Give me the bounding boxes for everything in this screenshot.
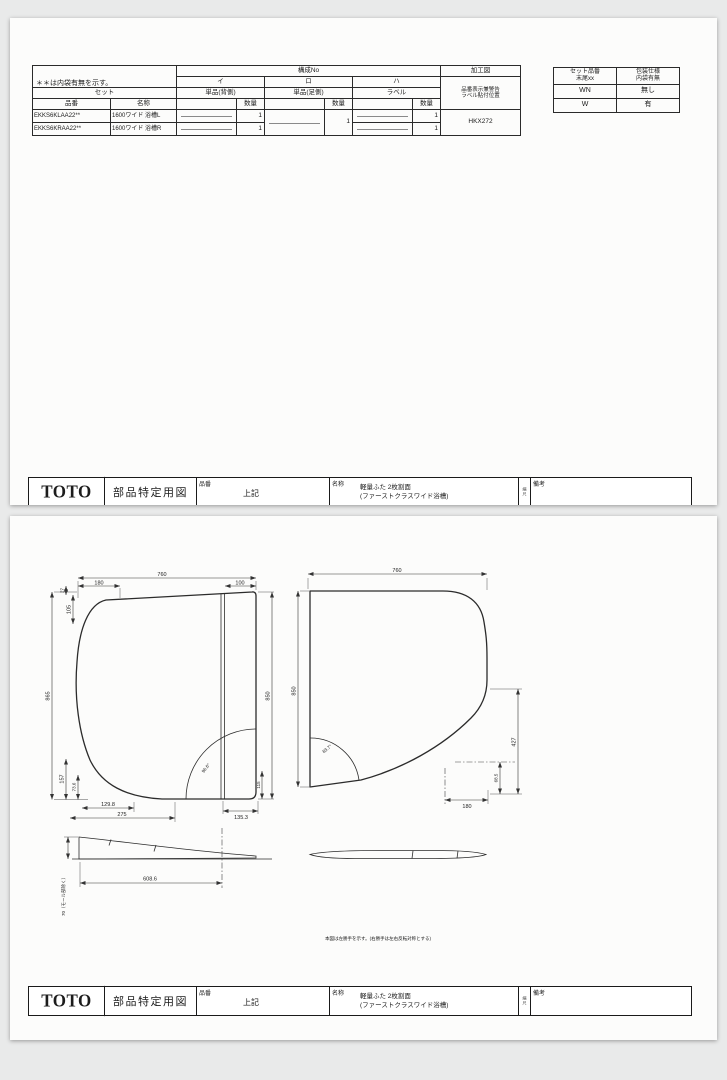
dim-850-left: 850 <box>266 691 272 700</box>
lid-left-profile: 608.6 70（モール部除く） <box>60 828 272 916</box>
dim-608-6: 608.6 <box>143 877 157 883</box>
processing-drawing-no: HKX272 <box>441 110 521 136</box>
blank-header <box>353 99 413 110</box>
dim-70-mold: 70（モール部除く） <box>60 875 67 916</box>
part-no-value: 上記 <box>243 488 259 499</box>
bag-code-cell: W <box>554 98 617 112</box>
component-blank-cell <box>353 110 413 123</box>
qty-cell: 1 <box>237 123 265 136</box>
qty-cell: 1 <box>413 123 441 136</box>
dim-180-right: 180 <box>462 804 471 810</box>
name-value: 軽量ふた 2枚割面 (ファーストクラスワイド浴槽) <box>360 484 448 502</box>
part-no-value: 上記 <box>243 997 259 1008</box>
name-value-line1: 軽量ふた 2枚割面 <box>360 484 448 493</box>
bag-col1-line1: セット品番 <box>554 69 616 76</box>
sheet-2: 96.6° 760 180 100 27 105 865 157 73.6 <box>10 516 717 1040</box>
lid-right-outline <box>310 591 487 787</box>
dim-100-left: 100 <box>235 581 244 587</box>
group-i-header: イ <box>177 77 265 88</box>
group-ha-header: ハ <box>353 77 441 88</box>
label-position-note: 品番表示兼警告 ラベル貼付位置 <box>441 77 521 110</box>
title-block: TOTO 部品特定用図 品番 上記 名称 軽量ふた 2枚割面 (ファーストクラス… <box>28 477 692 505</box>
part-no-label: 品番 <box>199 988 211 997</box>
dim-73-6-left: 73.6 <box>72 782 77 791</box>
qty-header-ha: 数量 <box>413 99 441 110</box>
dim-width-left: 760 <box>157 572 166 578</box>
scale-field: 縮尺 <box>519 478 531 505</box>
part-no-header: 品番 <box>33 99 111 110</box>
packaging-spec-table: セット品番 末尾xx 包装仕様 内袋有無 WN 無し W 有 <box>553 67 680 113</box>
scale-text: 縮尺 <box>522 996 528 1006</box>
lid-right-profile <box>310 851 486 859</box>
lid-left-view: 96.6° 760 180 100 27 105 865 157 73.6 <box>46 572 275 822</box>
blank-header <box>265 99 325 110</box>
toto-logo: TOTO <box>29 477 105 505</box>
part-no-field: 品番 上記 <box>197 478 330 505</box>
document-type: 部品特定用図 <box>105 987 197 1015</box>
remarks-label: 備考 <box>533 479 545 488</box>
composition-table: ＊＊は内袋有無を示す。 構成No 加工図 イ ロ ハ 品番表示兼警告 ラベル貼付… <box>32 65 521 136</box>
blank-header <box>177 99 237 110</box>
dim-height-left: 865 <box>46 691 52 700</box>
lid-left-outline <box>76 592 256 799</box>
lid-right-view: 83.7° 760 850 427 68.5 180 <box>292 568 523 810</box>
composition-no-header: 構成No <box>177 66 441 77</box>
table-row: WN 無し <box>554 84 680 98</box>
title-block: TOTO 部品特定用図 品番 上記 名称 軽量ふた 2枚割面 (ファーストクラス… <box>28 986 692 1016</box>
handedness-note: 本図は左勝手を示す。(右勝手は左右反転対称とする) <box>325 935 431 942</box>
label-position-line2: ラベル貼付位置 <box>442 93 519 99</box>
name-label: 名称 <box>332 988 344 997</box>
table-row: W 有 <box>554 98 680 112</box>
remarks-field: 備考 <box>531 987 691 1015</box>
set-header: セット <box>33 88 177 99</box>
component-blank-cell <box>353 123 413 136</box>
table-row: EKKS6KLAA22** 1600ワイド 浴槽L 1 1 1 HKX272 <box>33 110 521 123</box>
dim-width-right: 760 <box>392 568 401 574</box>
bag-col2-header: 包装仕様 内袋有無 <box>617 68 680 85</box>
dim-angle-left: 96.6° <box>201 762 212 774</box>
scale-text: 縮尺 <box>522 487 528 497</box>
bag-col1-header: セット品番 末尾xx <box>554 68 617 85</box>
part-no-label: 品番 <box>199 479 211 488</box>
dim-129-8-left: 129.8 <box>101 802 115 808</box>
dim-157-left: 157 <box>60 774 66 783</box>
part-no-field: 品番 上記 <box>197 987 330 1015</box>
group-ro-header: ロ <box>265 77 353 88</box>
group-ro-sub: 単品(足側) <box>265 88 353 99</box>
bag-code-cell: WN <box>554 84 617 98</box>
qty-header-i: 数量 <box>237 99 265 110</box>
toto-logo: TOTO <box>29 986 105 1016</box>
name-value: 軽量ふた 2枚割面 (ファーストクラスワイド浴槽) <box>360 993 448 1011</box>
dim-180-left: 180 <box>94 581 103 587</box>
sheet-1: ＊＊は内袋有無を示す。 構成No 加工図 イ ロ ハ 品番表示兼警告 ラベル貼付… <box>10 18 717 505</box>
dim-68-5-right: 68.5 <box>494 773 499 782</box>
component-blank-cell <box>177 110 237 123</box>
group-ha-sub: ラベル <box>353 88 441 99</box>
name-label: 名称 <box>332 479 344 488</box>
group-i-sub: 単品(背側) <box>177 88 265 99</box>
remarks-label: 備考 <box>533 988 545 997</box>
remarks-field: 備考 <box>531 478 691 505</box>
angle-arc <box>310 738 359 780</box>
bag-col2-line1: 包装仕様 <box>617 69 679 76</box>
dim-105-left: 105 <box>67 605 73 614</box>
name-value-line2: (ファーストクラスワイド浴槽) <box>360 1002 448 1011</box>
dim-850-right: 850 <box>292 686 298 695</box>
dim-115-left: 115 <box>256 781 261 789</box>
profile-left-outline <box>79 837 256 859</box>
dim-135-3-left: 135.3 <box>234 815 248 821</box>
part-no-cell: EKKS6KLAA22** <box>33 110 111 123</box>
name-header: 名称 <box>111 99 177 110</box>
inner-bag-note: ＊＊は内袋有無を示す。 <box>33 66 177 88</box>
component-blank-cell <box>177 123 237 136</box>
bag-value-cell: 有 <box>617 98 680 112</box>
qty-cell: 1 <box>413 110 441 123</box>
name-value-line2: (ファーストクラスワイド浴槽) <box>360 493 448 502</box>
qty-cell-merged: 1 <box>325 110 353 136</box>
bag-col1-line2: 末尾xx <box>554 76 616 83</box>
name-cell: 1600ワイド 浴槽L <box>111 110 177 123</box>
name-field: 名称 軽量ふた 2枚割面 (ファーストクラスワイド浴槽) <box>330 478 519 505</box>
name-field: 名称 軽量ふた 2枚割面 (ファーストクラスワイド浴槽) <box>330 987 519 1015</box>
name-value-line1: 軽量ふた 2枚割面 <box>360 993 448 1002</box>
bag-value-cell: 無し <box>617 84 680 98</box>
component-blank-cell <box>265 110 325 136</box>
dim-275-left: 275 <box>117 812 126 818</box>
dim-427-right: 427 <box>512 737 518 746</box>
name-cell: 1600ワイド 浴槽R <box>111 123 177 136</box>
qty-cell: 1 <box>237 110 265 123</box>
document-type: 部品特定用図 <box>105 478 197 505</box>
lid-drawing: 96.6° 760 180 100 27 105 865 157 73.6 <box>10 546 717 966</box>
dim-angle-right: 83.7° <box>321 743 333 754</box>
profile-right-outline <box>310 851 486 859</box>
bag-col2-line2: 内袋有無 <box>617 76 679 83</box>
scale-field: 縮尺 <box>519 987 531 1015</box>
qty-header-ro: 数量 <box>325 99 353 110</box>
processing-drawing-header: 加工図 <box>441 66 521 77</box>
part-no-cell: EKKS6KRAA22** <box>33 123 111 136</box>
